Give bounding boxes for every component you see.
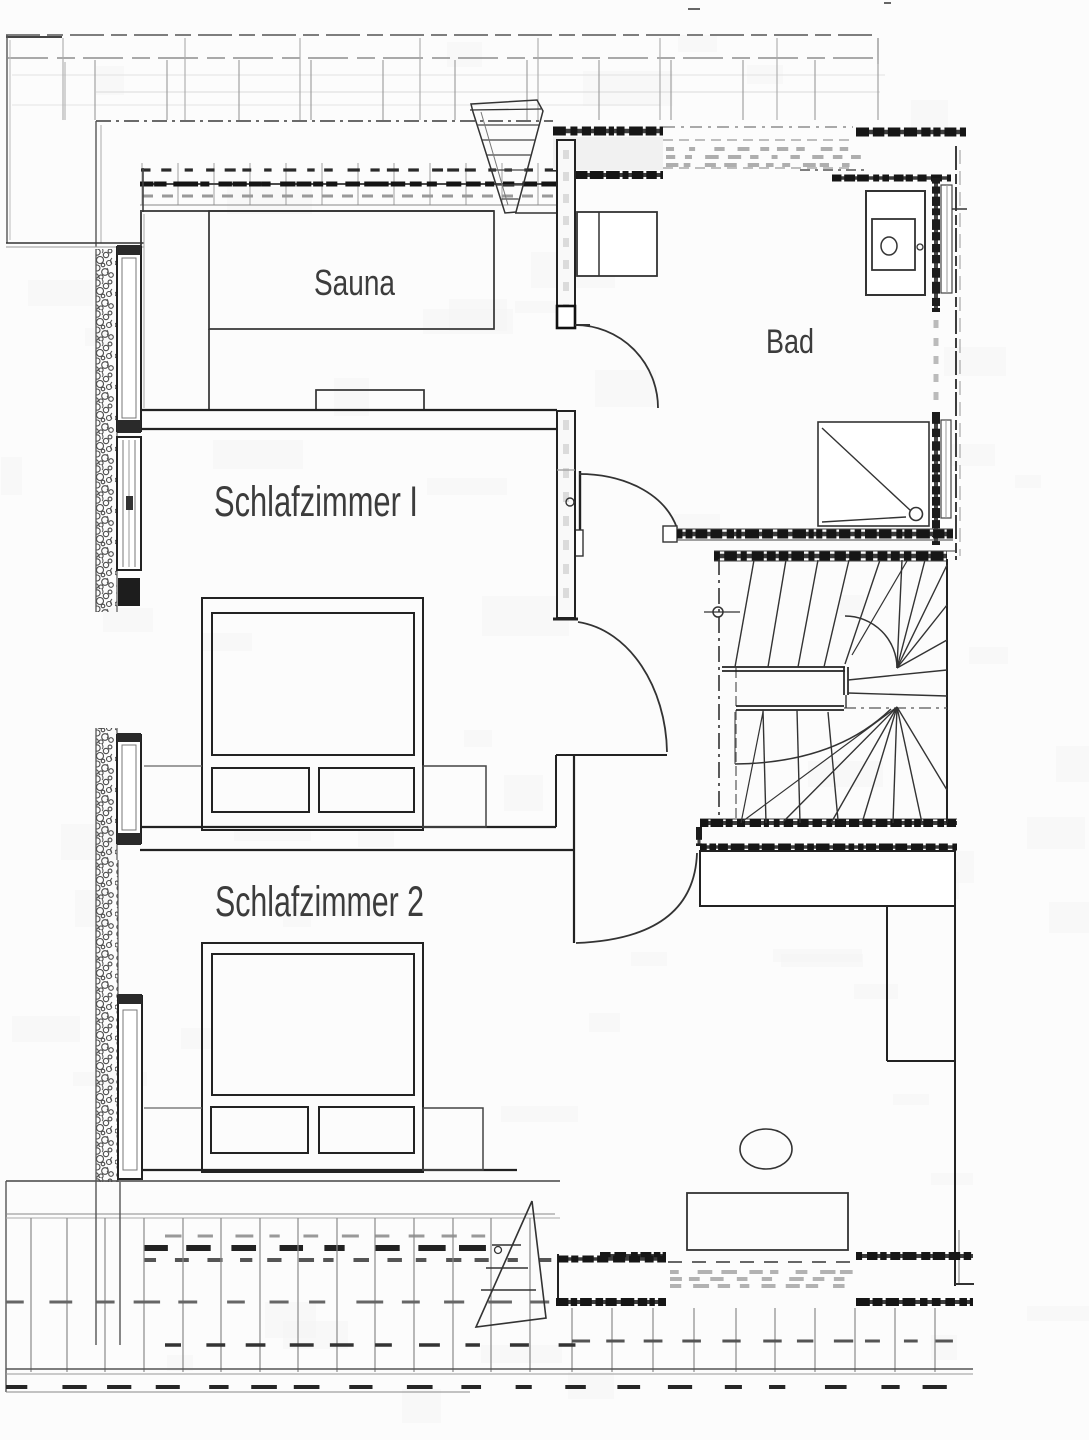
svg-text:Bad: Bad	[766, 323, 814, 361]
svg-text:Schlafzimmer I: Schlafzimmer I	[214, 478, 418, 526]
svg-text:Sauna: Sauna	[314, 262, 396, 303]
svg-text:Schlafzimmer 2: Schlafzimmer 2	[215, 878, 424, 926]
